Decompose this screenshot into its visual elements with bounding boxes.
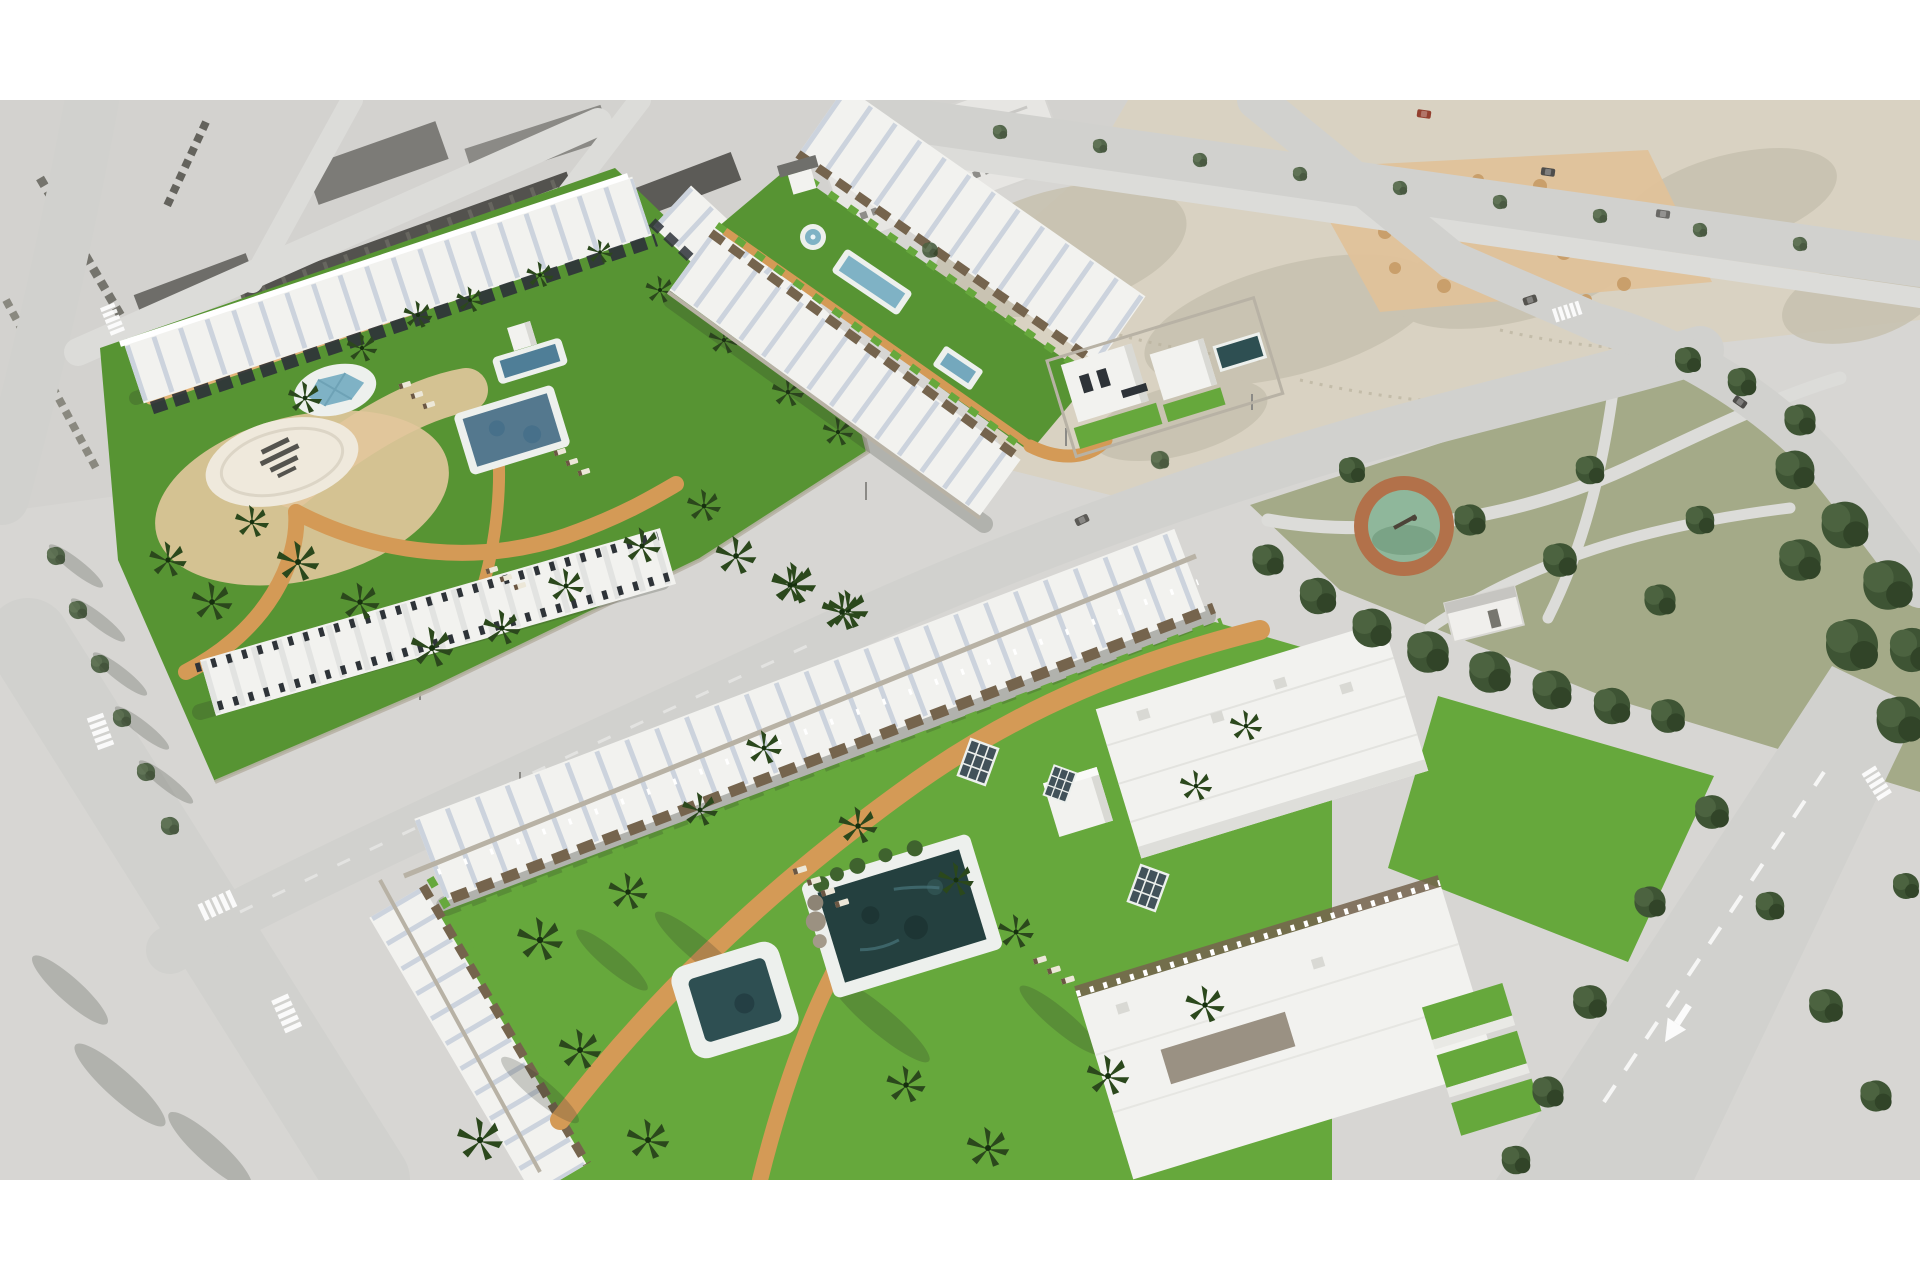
playground [1354, 476, 1454, 576]
letterbox-top [0, 0, 1920, 100]
screenshot-root [0, 0, 1920, 1280]
fountain [800, 224, 826, 250]
aerial-render [0, 0, 1920, 1280]
letterbox-bottom [0, 1180, 1920, 1280]
